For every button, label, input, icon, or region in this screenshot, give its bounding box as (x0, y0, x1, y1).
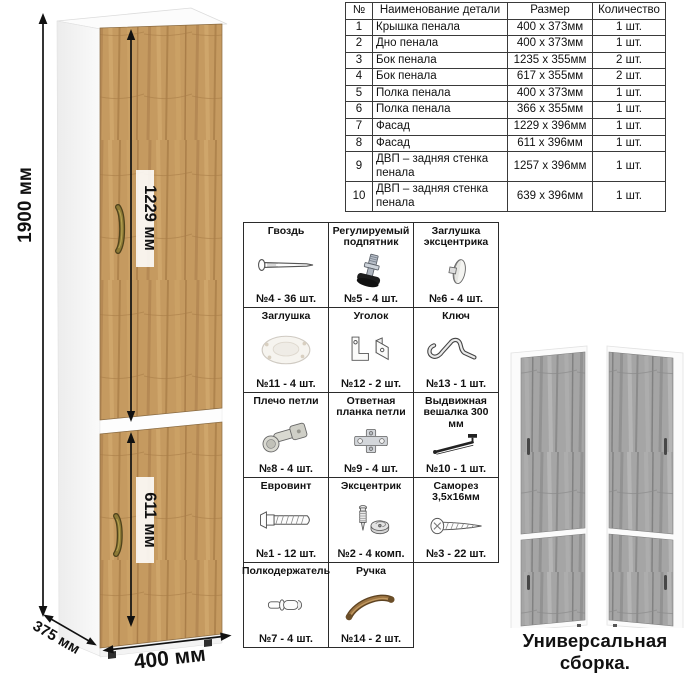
hardware-item-name: Полкодержатель (242, 566, 330, 577)
table-row: 4 Бок пенала 617 х 355мм 2 шт. (346, 69, 666, 86)
hardware-item-name: Плечо петли (253, 396, 318, 407)
table-row: 6 Полка пенала 366 х 355мм 1 шт. (346, 102, 666, 119)
lower-door-label: 611 мм (141, 492, 159, 548)
col-header-size: Размер (508, 3, 593, 20)
hardware-item-count: №1 - 12 шт. (256, 548, 316, 560)
euro-screw-icon (251, 492, 321, 548)
hardware-item: Заглушка эксцентрика №6 - 4 шт. (414, 223, 499, 308)
cabinet-diagram: 1900 мм 1229 мм 611 мм 400 мм (0, 0, 240, 683)
hardware-item: Регулируемый подпятник (329, 223, 414, 308)
hardware-item: Плечо петли №8 - 4 шт. (244, 393, 329, 478)
hardware-item: Выдвижная вешалка 300 мм №10 - 1 шт. (414, 393, 499, 478)
hardware-item-count: №13 - 1 шт. (426, 378, 486, 390)
handle-icon (338, 577, 404, 633)
table-row: 3 Бок пенала 1235 х 355мм 2 шт. (346, 52, 666, 69)
hardware-item: Эксцентрик (329, 478, 414, 563)
adjustable-foot-icon (340, 249, 402, 293)
height-dimension (39, 13, 48, 617)
furniture-assembly-sheet: 1900 мм 1229 мм 611 мм 400 мм (0, 0, 700, 683)
variant-cabinet-left (511, 346, 587, 628)
table-row: 1 Крышка пенала 400 х 373мм 1 шт. (346, 19, 666, 36)
table-row: 5 Полка пенала 400 х 373мм 1 шт. (346, 85, 666, 102)
hardware-item: Саморез 3,5х16мм №3 - 22 шт. (414, 478, 499, 563)
table-row: 9 ДВП – задняя стенка пенала 1257 х 396м… (346, 152, 666, 182)
hardware-item-count: №2 - 4 комп. (337, 548, 404, 560)
hardware-item: Уголок №12 - 2 шт. (329, 308, 414, 393)
self-tapping-screw-icon (424, 504, 488, 548)
hardware-item-name: Ручка (356, 566, 386, 577)
hardware-item-name: Заглушка эксцентрика (415, 226, 497, 249)
shelf-pin-icon (257, 577, 315, 633)
hardware-item: Ключ №13 - 1 шт. (414, 308, 499, 393)
hinge-plate-icon (343, 419, 399, 463)
hardware-item-count: №3 - 22 шт. (426, 548, 486, 560)
col-header-num: № (346, 3, 373, 20)
hardware-item-name: Ключ (442, 311, 470, 322)
height-label: 1900 мм (15, 167, 36, 243)
hardware-item-name: Заглушка (262, 311, 311, 322)
corner-bracket-icon (340, 322, 402, 378)
hardware-item-count: №6 - 4 шт. (429, 293, 483, 305)
cam-lock-icon (342, 492, 400, 548)
hardware-grid: Гвоздь №4 - 36 шт. Регулируемый подпятни… (243, 222, 499, 648)
variant-cabinets (497, 332, 697, 628)
hardware-item-name: Гвоздь (268, 226, 305, 237)
hinge-arm-icon (254, 407, 318, 463)
hardware-item-count: №12 - 2 шт. (341, 378, 401, 390)
nail-icon (251, 237, 321, 293)
pullout-hanger-icon (422, 430, 490, 463)
hardware-item: Евровинт №1 - 12 шт. (244, 478, 329, 563)
variant-door-handle (527, 438, 530, 455)
hardware-item-count: №7 - 4 шт. (259, 633, 313, 645)
hardware-item-name: Эксцентрик (341, 481, 401, 492)
col-header-qty: Количество (593, 3, 666, 20)
table-row: 2 Дно пенала 400 х 373мм 1 шт. (346, 36, 666, 53)
variant-door-handle (664, 438, 667, 455)
hardware-item-name: Ответная планка петли (330, 396, 412, 419)
hardware-item-name: Уголок (354, 311, 389, 322)
table-row: 8 Фасад 611 х 396мм 1 шт. (346, 135, 666, 152)
hardware-item-count: №9 - 4 шт. (344, 463, 398, 475)
hardware-item-name: Евровинт (261, 481, 312, 492)
hardware-grid-empty-cell (414, 563, 499, 648)
hardware-item-count: №10 - 1 шт. (426, 463, 486, 475)
cam-cover-icon (426, 249, 486, 293)
hardware-item-name: Регулируемый подпятник (330, 226, 412, 249)
hardware-item-count: №11 - 4 шт. (256, 378, 316, 390)
hardware-item-count: №14 - 2 шт. (341, 633, 401, 645)
hardware-item: Гвоздь №4 - 36 шт. (244, 223, 329, 308)
hardware-item-count: №4 - 36 шт. (256, 293, 316, 305)
hardware-item-count: №8 - 4 шт. (259, 463, 313, 475)
cabinet-foot (204, 639, 212, 647)
col-header-name: Наименование детали (373, 3, 508, 20)
cap-icon (253, 322, 319, 378)
hardware-item-name: Выдвижная вешалка 300 мм (415, 396, 497, 430)
table-row: 10 ДВП – задняя стенка пенала 639 х 396м… (346, 182, 666, 212)
parts-table: № Наименование детали Размер Количество … (345, 2, 666, 212)
hardware-item: Ответная планка петли №9 - 4 шт. (329, 393, 414, 478)
hardware-item-name: Саморез 3,5х16мм (415, 481, 497, 504)
parts-table-header-row: № Наименование детали Размер Количество (346, 3, 666, 20)
hardware-item: Полкодержатель №7 - 4 шт. (244, 563, 329, 648)
variant-door-handle (664, 575, 667, 590)
hardware-item-count: №5 - 4 шт. (344, 293, 398, 305)
variant-door-handle (527, 575, 530, 590)
upper-door (100, 24, 222, 420)
variant-cabinet-right (607, 346, 683, 628)
table-row: 7 Фасад 1229 х 396мм 1 шт. (346, 118, 666, 135)
key-icon (423, 322, 489, 378)
hardware-item: Ручка №14 - 2 шт. (329, 563, 414, 648)
hardware-item: Заглушка №11 - 4 шт. (244, 308, 329, 393)
variant-caption: Универсальная сборка. (490, 630, 700, 674)
upper-door-label: 1229 мм (141, 185, 159, 251)
